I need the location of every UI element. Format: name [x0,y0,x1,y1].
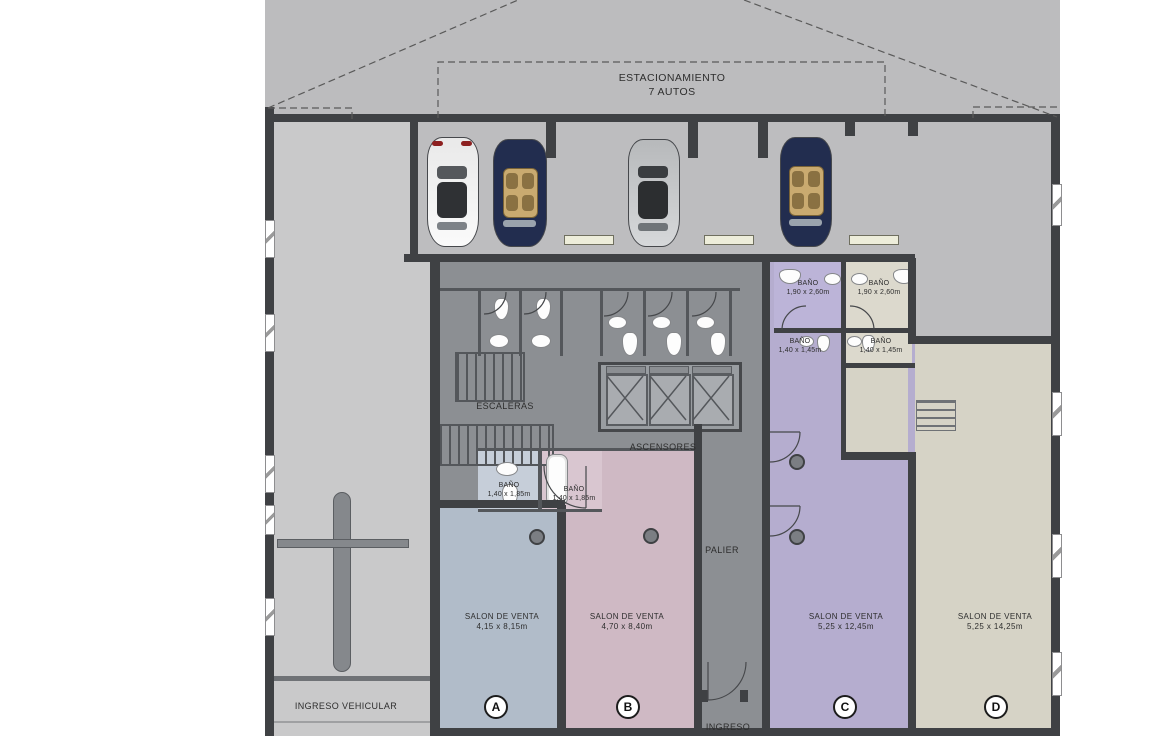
unit-b-name: SALON DE VENTA [572,612,682,622]
window-marker [1052,392,1062,436]
wall [845,122,855,136]
wall [686,290,689,356]
entrance-label: INGRESO [692,722,764,734]
car-seat [792,193,804,209]
parking-area-right [908,258,1052,344]
navy-convertible [493,139,547,247]
door-pivot-dot [789,529,805,545]
unit-a-size: 4,15 x 8,15m [448,622,556,632]
unit-b-upper-area [602,450,694,512]
wall [908,258,916,344]
wall [538,450,542,512]
bath-c-large-size: 1,90 x 2,60m [775,289,841,298]
unit-a-name: SALON DE VENTA [448,612,556,622]
wall [546,122,556,158]
elevator-cab [606,374,648,426]
wall [600,290,603,356]
wall [478,290,481,356]
vehicle-entrance-label: INGRESO VEHICULAR [276,701,416,713]
bath-d-large-size: 1,90 x 2,60m [846,289,912,298]
wall [410,122,418,258]
door-pivot-dot [643,528,659,544]
wall [430,258,440,736]
wall [519,290,522,356]
wall [908,336,1060,344]
window-marker [265,220,275,258]
navy-convertible [780,137,832,247]
door-pivot-dot [789,454,805,470]
wall [841,364,846,460]
wall [265,107,274,736]
car-rear-window [638,166,668,178]
unit-b-label: SALON DE VENTA 4,70 x 8,40m [572,612,682,633]
car-seat [792,171,804,187]
bath-b-label: BAÑO 1,40 x 1,85m [548,486,600,504]
car-seat [808,193,820,209]
elevator-sill [692,366,732,374]
bath-d-small-label: BAÑO 1,40 x 1,45m [850,338,912,356]
wall [740,690,748,702]
window-marker [1052,534,1062,578]
sink-icon [531,334,551,348]
elevator-sill [649,366,689,374]
driveway-gate-line [274,676,430,681]
car-roof [638,181,668,219]
elevator-cab [649,374,691,426]
wall [265,114,1060,122]
wall [560,290,563,356]
parking-label: ESTACIONAMIENTO 7 AUTOS [562,72,782,99]
unit-c-letter: C [841,700,850,714]
unit-b-letter: B [624,700,633,714]
silver-car [628,139,680,247]
white-car [427,137,479,247]
unit-c-size: 5,25 x 12,45m [790,622,902,632]
wall [758,122,768,158]
sink-icon [652,316,671,329]
bath-d-small-size: 1,40 x 1,45m [850,347,912,356]
sink-icon [696,316,715,329]
bath-b-name: BAÑO [548,486,600,495]
wall [841,262,846,368]
vehicle-entrance-label-text: INGRESO VEHICULAR [276,701,416,713]
wall [908,452,916,736]
cross-marker-horizontal [277,539,409,548]
wall [688,122,698,158]
stairs-lower-flight [438,424,554,466]
wheel-stop [704,235,754,245]
window-marker [265,598,275,636]
stairs-label-text: ESCALERAS [450,401,560,413]
wall [762,258,770,736]
parking-label-line1: ESTACIONAMIENTO [562,72,782,86]
unit-d-letter: D [992,700,1001,714]
wall [404,254,915,262]
wall [643,290,646,356]
car-seat [522,195,534,211]
wall [478,509,602,512]
bath-d-small-name: BAÑO [850,338,912,347]
bath-a-size: 1,40 x 1,85m [480,491,538,500]
bath-b-size: 1,40 x 1,85m [548,495,600,504]
parking-label-line2: 7 AUTOS [562,86,782,100]
sink-icon [608,316,627,329]
unit-d-size: 5,25 x 14,25m [938,622,1052,632]
unit-d-label: SALON DE VENTA 5,25 x 14,25m [938,612,1052,633]
unit-d-name: SALON DE VENTA [938,612,1052,622]
car-seat [522,173,534,189]
unit-d-steps [916,400,956,431]
elevators-label-text: ASCENSORES [608,442,718,454]
bath-c-small-size: 1,40 x 1,45m [770,347,830,356]
wall [729,290,732,356]
unit-c-badge: C [833,695,857,719]
bath-a-label: BAÑO 1,40 x 1,85m [480,482,538,500]
car-roof [437,182,467,218]
cross-marker-vertical [333,492,351,672]
car-seat [808,171,820,187]
driveway-edge-line [274,721,430,723]
elevator-sill [606,366,646,374]
bath-d-large-name: BAÑO [846,280,912,289]
window-marker [265,505,275,535]
sink-icon [496,462,518,476]
unit-b-badge: B [616,695,640,719]
bath-c-large-name: BAÑO [775,280,841,289]
unit-c-name: SALON DE VENTA [790,612,902,622]
unit-a-letter: A [492,700,501,714]
window-marker [265,314,275,352]
wall [557,505,566,736]
elevator-cab [692,374,734,426]
elevators-label: ASCENSORES [608,442,718,454]
bath-a-name: BAÑO [480,482,538,491]
car-windshield [638,223,668,231]
window-marker [265,455,275,493]
unit-b-size: 4,70 x 8,40m [572,622,682,632]
unit-d-notch [845,366,908,455]
sink-icon [489,334,509,348]
car-seat [506,173,518,189]
car-taillight [432,141,443,146]
wall [845,363,915,368]
car-windshield [503,220,536,227]
wall [700,690,708,702]
window-marker [1052,652,1062,696]
unit-c-label: SALON DE VENTA 5,25 x 12,45m [790,612,902,633]
driveway-area [274,122,430,736]
bath-c-small-name: BAÑO [770,338,830,347]
wall [440,288,740,291]
door-pivot-dot [529,529,545,545]
car-windshield [789,219,822,226]
bath-d-large-label: BAÑO 1,90 x 2,60m [846,280,912,298]
stairs-label: ESCALERAS [450,401,560,413]
entrance-label-text: INGRESO [692,722,764,734]
car-taillight [461,141,472,146]
car-windshield [437,222,467,230]
hall-label-text: PALIER [690,545,754,557]
hall-label: PALIER [690,545,754,557]
wheel-stop [849,235,899,245]
unit-a-badge: A [484,695,508,719]
bath-c-large-label: BAÑO 1,90 x 2,60m [775,280,841,298]
wheel-stop [564,235,614,245]
wall [908,122,918,136]
window-marker [1052,184,1062,226]
wall [774,328,914,333]
wall [430,500,565,508]
bath-c-small-label: BAÑO 1,40 x 1,45m [770,338,830,356]
unit-d-badge: D [984,695,1008,719]
car-seat [506,195,518,211]
stairs-upper-flight [455,352,525,402]
car-rear-window [437,166,467,179]
floor-plan: A B C D ESTACIONAMIENTO 7 AUTOS ESCALERA… [0,0,1160,738]
wall [841,452,913,460]
unit-a-label: SALON DE VENTA 4,15 x 8,15m [448,612,556,633]
